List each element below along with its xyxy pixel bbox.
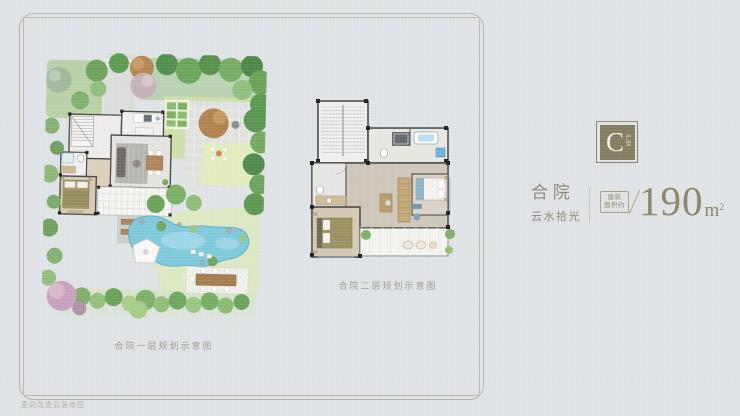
pouf: [429, 242, 437, 248]
area-value: 190: [639, 186, 704, 218]
pouf: [416, 241, 426, 249]
unit-title: 合 院: [531, 184, 591, 201]
watermark-text: 意向改造后装修图: [21, 400, 85, 410]
page: { "page": { "background": "#e0e4e7", "fr…: [0, 0, 740, 416]
vertical-divider: [589, 187, 590, 223]
area-info: 建筑 面积约 190 m2: [600, 186, 724, 218]
balcony-plant: [445, 246, 453, 254]
vegetable-garden: [164, 100, 189, 129]
balcony-plant: [361, 230, 371, 240]
first-floor-plan-illustration: [41, 52, 267, 335]
first-floor-caption: 合院一层规划示意图: [84, 339, 244, 352]
toilet: [317, 186, 324, 195]
area-unit-superscript: 2: [719, 202, 724, 213]
area-unit: m2: [705, 203, 725, 218]
unit-type-badge-inner: C 户型: [600, 125, 635, 160]
pouf: [403, 241, 413, 249]
second-floor-caption: 合院二层规划示意图: [308, 279, 468, 292]
unit-type-badge: C 户型: [596, 121, 638, 163]
armchair: [414, 214, 421, 221]
wardrobe: [398, 178, 410, 222]
bed-bench: [412, 204, 422, 209]
outdoor-dining: [186, 267, 249, 294]
area-label-line2: 面积约: [604, 202, 625, 210]
balcony-plant: [445, 229, 455, 239]
unit-type-letter: C: [606, 129, 624, 156]
master-bathroom: [366, 126, 448, 163]
second-floor-plan-illustration: [304, 94, 472, 268]
title-block: 合 院 云水拾光: [531, 184, 591, 224]
balcony: [360, 228, 455, 256]
unit-type-sub-label: 户型: [624, 134, 630, 147]
stairwell: [316, 99, 368, 163]
area-label: 建筑 面积约: [600, 191, 629, 213]
unit-subtitle: 云水拾光: [531, 208, 591, 224]
bed-left: [317, 218, 352, 248]
stairs: [71, 116, 94, 146]
area-label-line1: 建筑: [604, 194, 625, 202]
